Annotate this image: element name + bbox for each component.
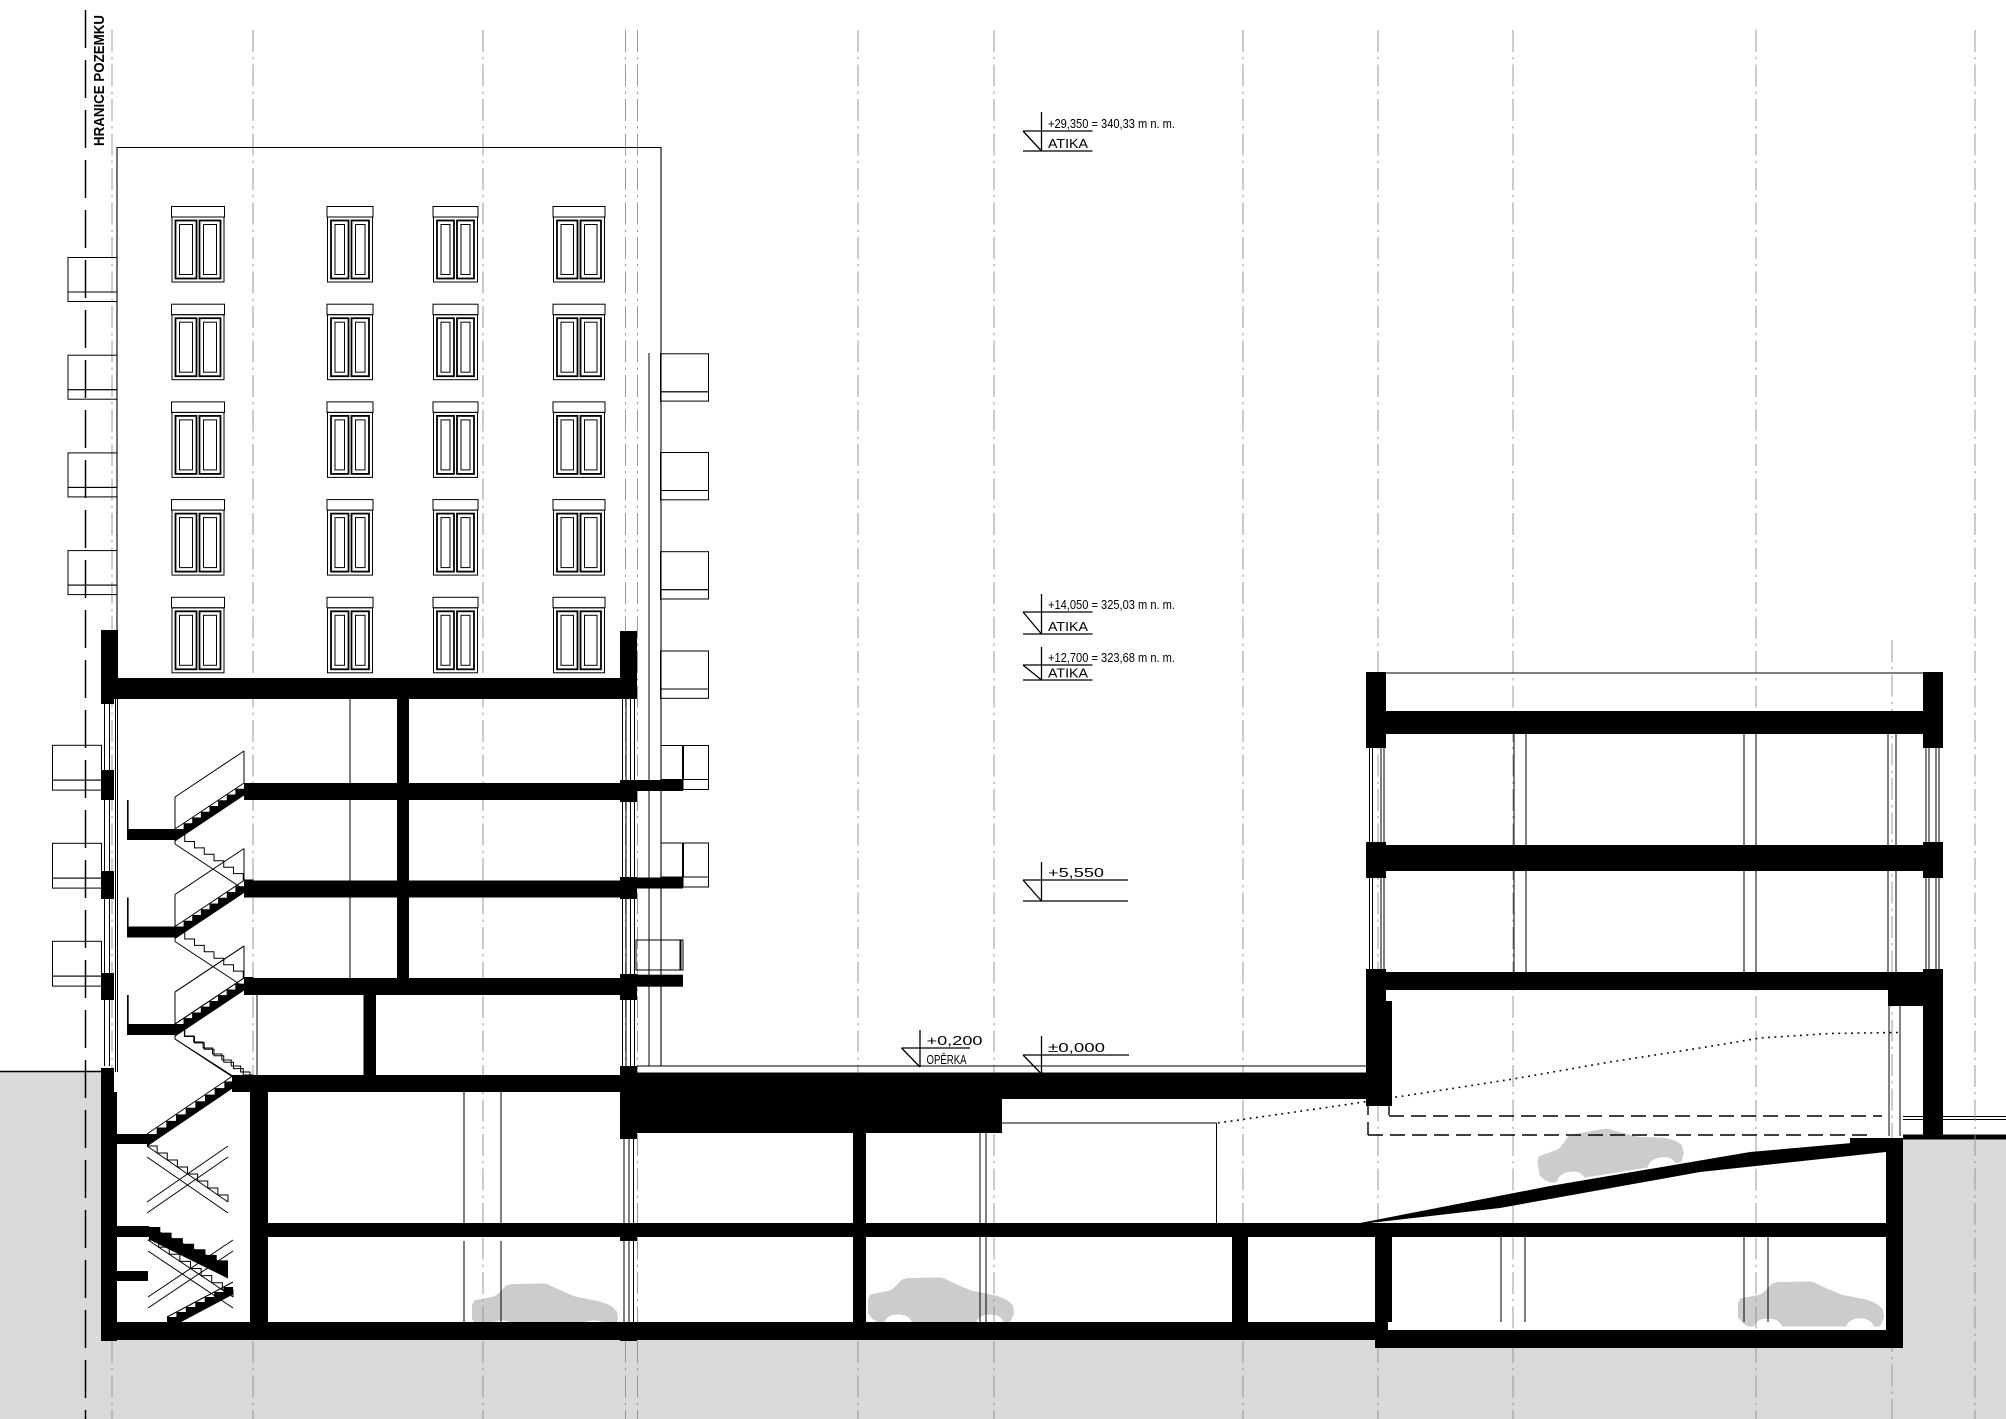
svg-text:ATIKA: ATIKA [1048,620,1089,634]
svg-text:ATIKA: ATIKA [1048,137,1089,151]
svg-text:+29,350 = 340,33 m n. m.: +29,350 = 340,33 m n. m. [1048,116,1175,131]
svg-text:HRANICE POZEMKU: HRANICE POZEMKU [91,15,108,146]
svg-text:±0,000: ±0,000 [1048,1040,1105,1055]
svg-text:OPĚRKA: OPĚRKA [927,1052,968,1067]
svg-text:+12,700 = 323,68 m n. m.: +12,700 = 323,68 m n. m. [1048,650,1175,665]
svg-text:+0,200: +0,200 [927,1033,983,1048]
svg-text:+14,050 = 325,03 m n. m.: +14,050 = 325,03 m n. m. [1048,597,1175,612]
svg-text:ATIKA: ATIKA [1048,667,1089,681]
svg-text:+5,550: +5,550 [1048,865,1104,880]
